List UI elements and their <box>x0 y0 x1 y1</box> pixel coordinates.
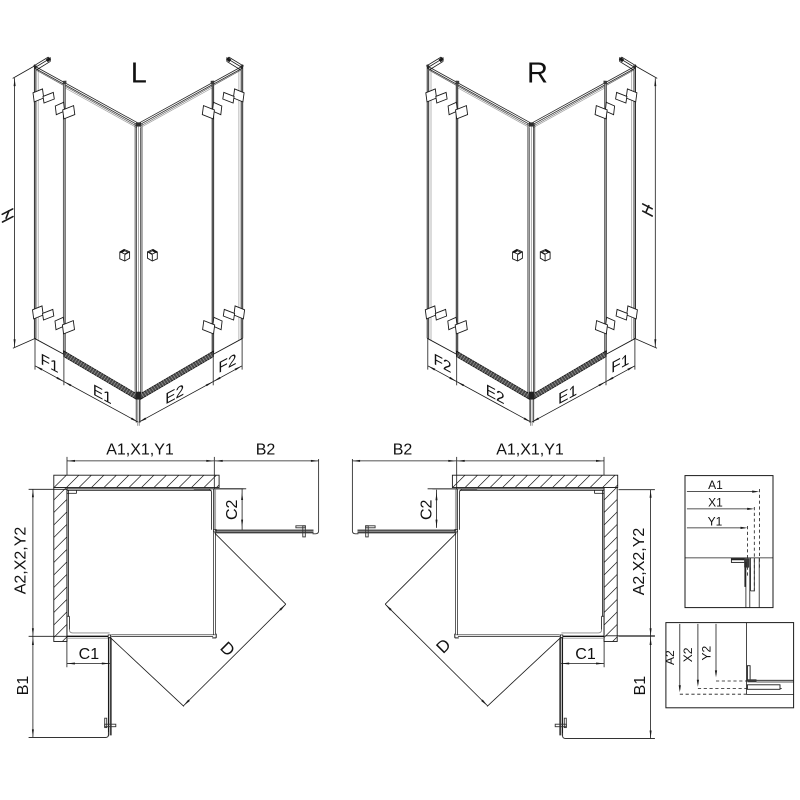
svg-text:B2: B2 <box>256 442 276 459</box>
svg-text:C1: C1 <box>79 646 100 663</box>
svg-text:C1: C1 <box>575 646 596 663</box>
svg-text:C2: C2 <box>419 499 436 520</box>
svg-text:A1,X1,Y1: A1,X1,Y1 <box>106 442 174 459</box>
svg-text:B1: B1 <box>632 676 649 696</box>
svg-text:R: R <box>527 57 548 89</box>
svg-text:L: L <box>131 57 147 89</box>
svg-text:X2: X2 <box>681 647 695 662</box>
svg-text:B1: B1 <box>15 676 32 696</box>
svg-text:X1: X1 <box>708 496 723 510</box>
svg-text:A2,X2,Y2: A2,X2,Y2 <box>12 527 29 595</box>
svg-text:A2,X2,Y2: A2,X2,Y2 <box>631 528 648 596</box>
svg-text:Y1: Y1 <box>708 515 723 529</box>
svg-text:A2: A2 <box>663 650 677 665</box>
svg-text:A1,X1,Y1: A1,X1,Y1 <box>496 442 564 459</box>
svg-text:A1: A1 <box>708 478 723 492</box>
svg-text:C2: C2 <box>224 499 241 520</box>
svg-text:Y2: Y2 <box>700 645 714 660</box>
svg-text:B2: B2 <box>393 442 413 459</box>
